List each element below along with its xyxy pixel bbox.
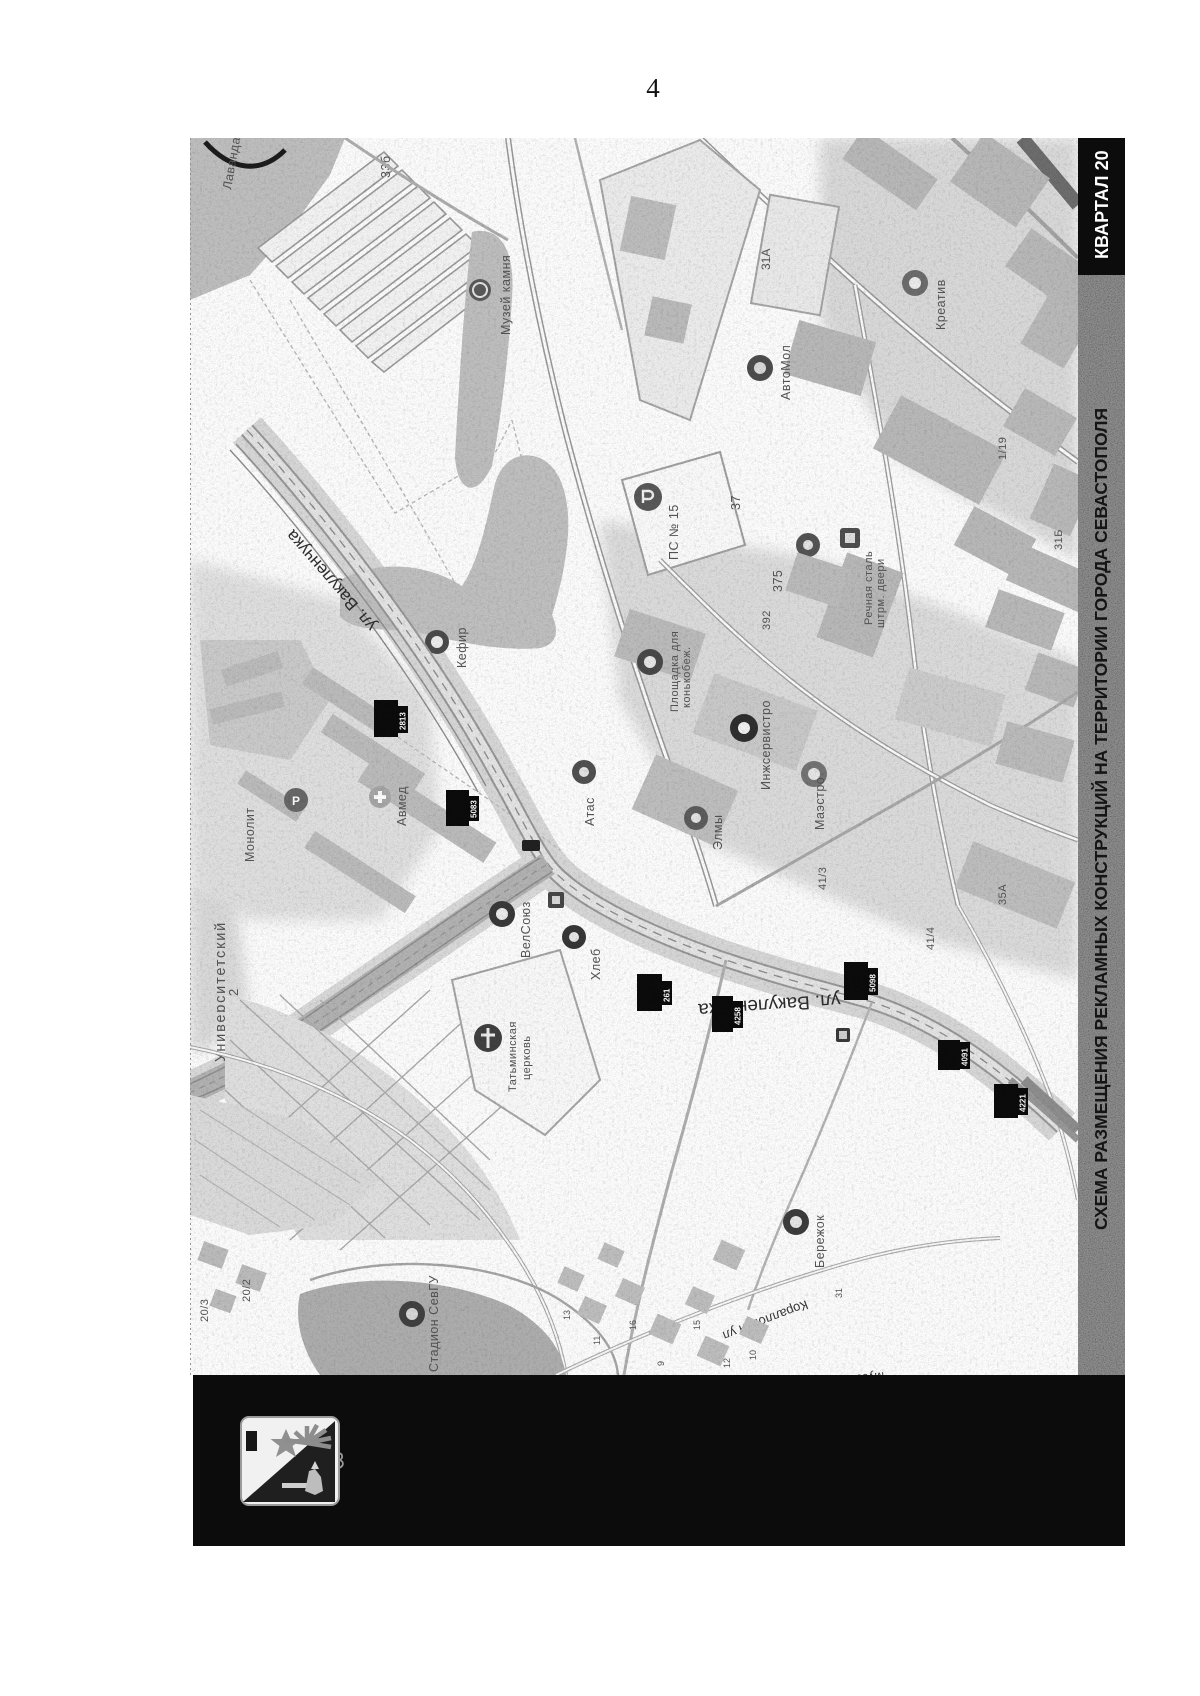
svg-text:СХЕМА РАЗМЕЩЕНИЯ РЕКЛАМНЫХ КОН: СХЕМА РАЗМЕЩЕНИЯ РЕКЛАМНЫХ КОНСТРУКЦИЙ Н… [1090,408,1111,1230]
svg-text:4: 4 [646,73,660,103]
svg-text:КВАРТАЛ 20: КВАРТАЛ 20 [1092,150,1112,259]
